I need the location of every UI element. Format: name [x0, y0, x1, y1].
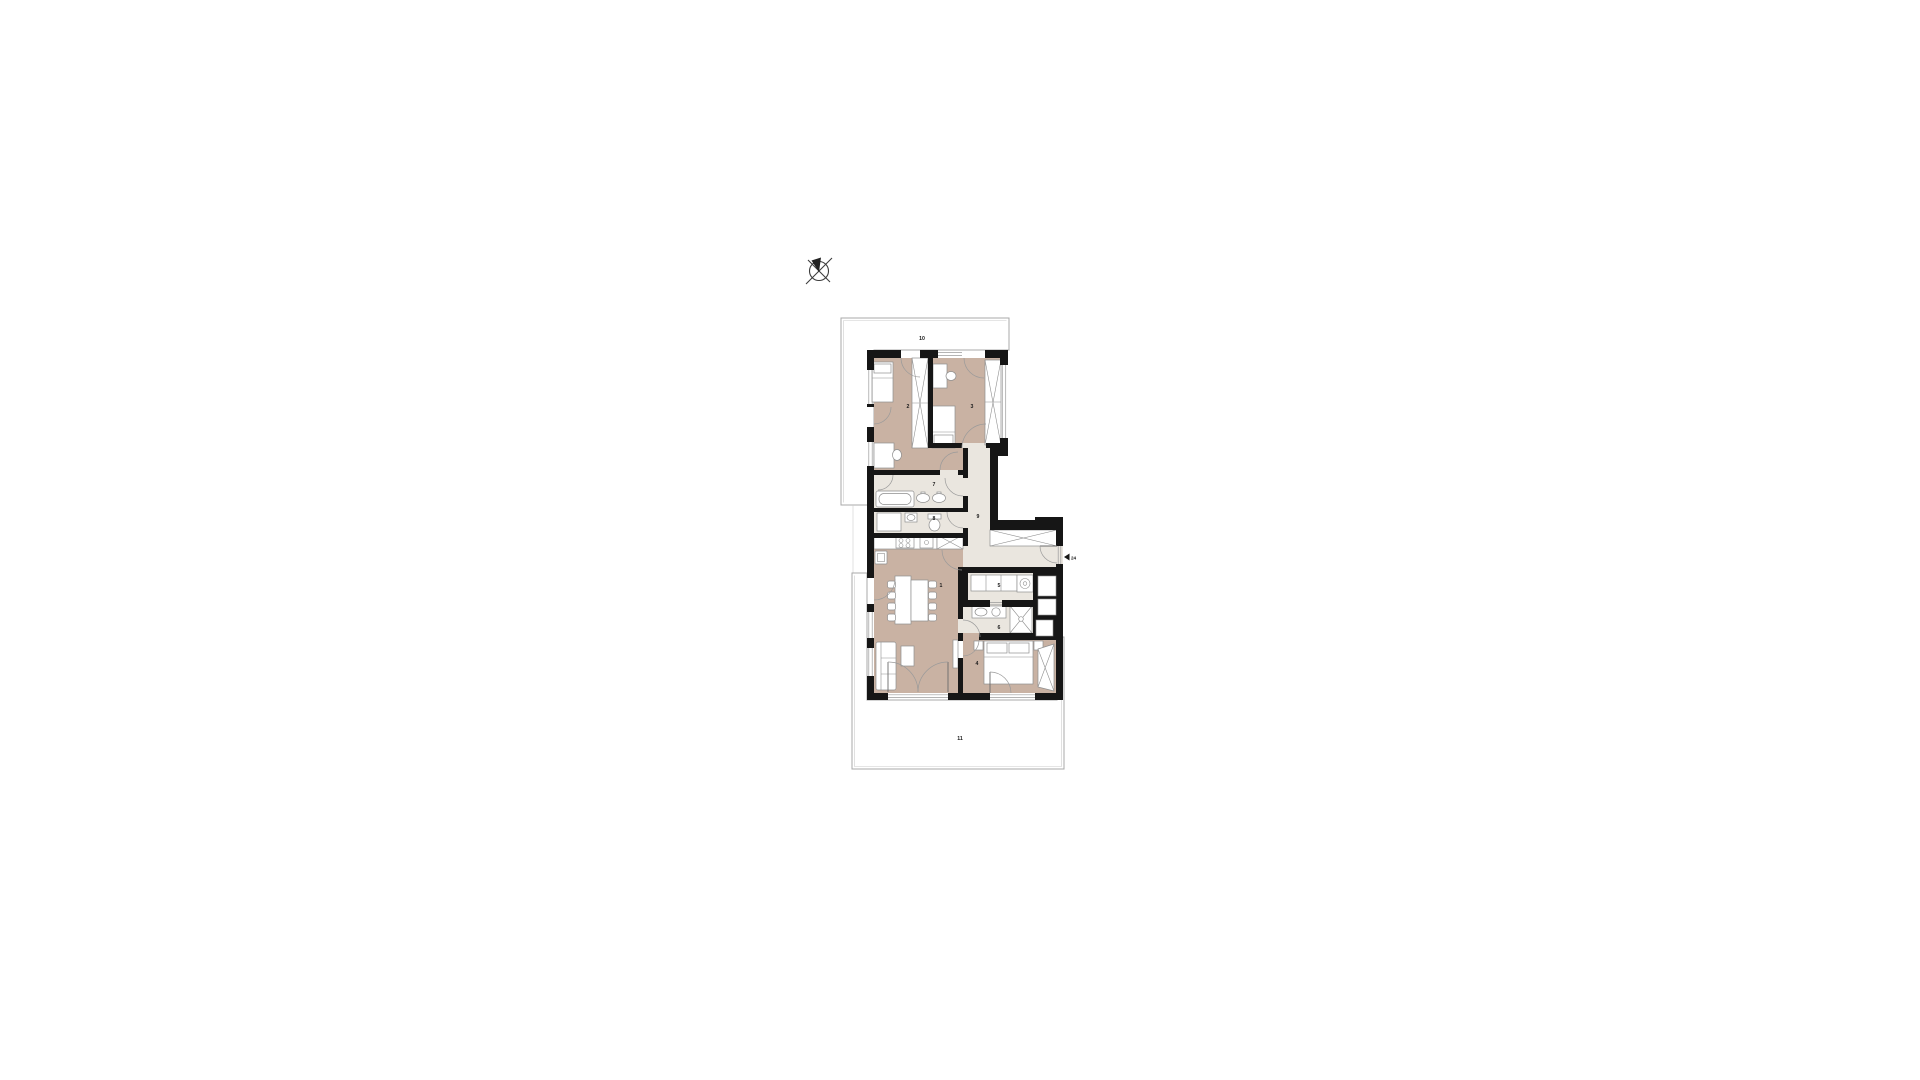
chair [929, 603, 937, 610]
room-label-7: 7 [933, 482, 936, 488]
desk [933, 364, 947, 388]
sink [917, 494, 930, 503]
sofa [876, 642, 896, 690]
chair [929, 581, 937, 588]
room-label-3: 3 [971, 404, 974, 410]
pillow [1009, 643, 1029, 653]
closet [877, 513, 901, 531]
room-label-1: 1 [940, 583, 943, 589]
left-triangle-icon [1064, 554, 1070, 561]
chair [946, 372, 956, 381]
room-label-4: 4 [976, 661, 979, 667]
room-label-5: 5 [998, 583, 1001, 589]
desk [874, 443, 894, 468]
fridge [875, 551, 887, 564]
room-label-2: 2 [907, 404, 910, 410]
floor-plan: 1 2 3 4 5 6 7 8 9 10 11 24 [790, 245, 1090, 790]
chair [888, 614, 896, 621]
room-label-6: 6 [998, 625, 1001, 631]
kitchen-sink [920, 537, 933, 548]
sink [992, 608, 1000, 616]
kitchen-island [895, 576, 911, 624]
sink [975, 608, 987, 616]
dining-table [911, 580, 928, 621]
chair [929, 614, 937, 621]
chair [929, 592, 937, 599]
pillow [987, 643, 1007, 653]
chair [888, 592, 896, 599]
room-2-floor-ext [928, 448, 963, 470]
sink [933, 494, 946, 503]
chair [893, 450, 902, 461]
counter [971, 575, 1017, 591]
pillow [874, 364, 891, 373]
washing-machine [1017, 575, 1033, 592]
terrace-label-11: 11 [957, 736, 963, 742]
page-background: 1 2 3 4 5 6 7 8 9 10 11 24 [0, 0, 1920, 1080]
stove [896, 537, 914, 548]
floor-plan-svg: 1 2 3 4 5 6 7 8 9 10 11 24 [790, 245, 1090, 790]
cabinet [953, 640, 958, 668]
room-label-9: 9 [977, 514, 980, 520]
room-4-door-gap [963, 633, 979, 640]
entrance-marker: 24 [1064, 554, 1077, 561]
terrace-label-10: 10 [919, 336, 925, 342]
chair [888, 603, 896, 610]
room-label-8: 8 [933, 516, 936, 522]
compass-icon [806, 258, 832, 285]
utility-shafts [1036, 576, 1056, 636]
entrance-label: 24 [1071, 555, 1077, 560]
coffee-table [901, 646, 914, 666]
